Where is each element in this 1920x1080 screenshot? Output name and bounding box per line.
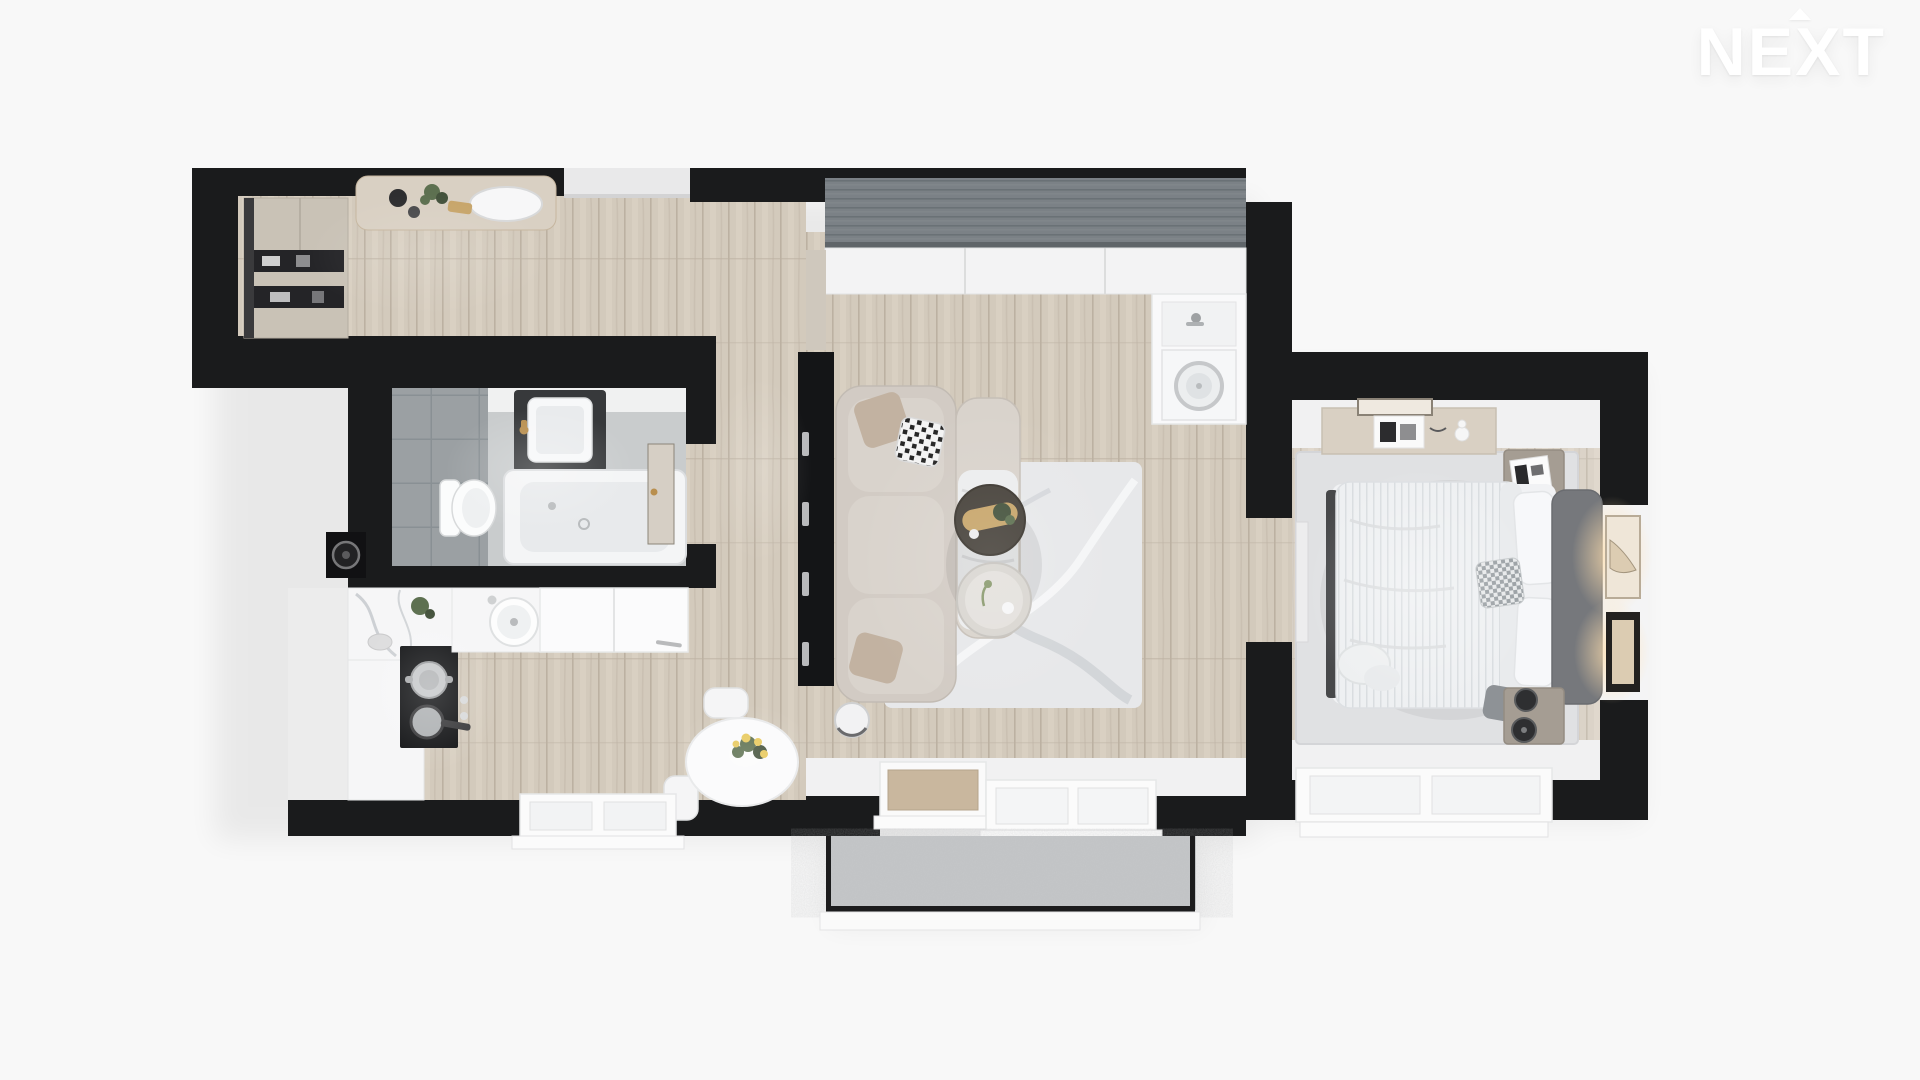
frying-pan [411,706,443,738]
side-table-dish [1002,602,1014,614]
slat-panel-shade [825,242,1246,248]
bedroom-right-wall-upper [1600,352,1648,505]
pot-handle-right [445,676,453,683]
book-cover-art-2 [1531,464,1544,476]
corner-washer-niche [326,532,366,578]
wall-art-2-inner [1612,620,1634,684]
bathroom-doorway-floor [686,444,716,544]
brass-faucet-stem [521,420,527,430]
corridor-floor [716,336,806,588]
wardrobe-shelf-items-3 [270,292,290,302]
storage-handle-3 [802,572,809,596]
counter-plant-leaf [425,609,435,619]
table-plant-leaf [1005,515,1015,525]
chair-top [704,688,748,718]
entrance-threshold [564,194,690,198]
photo-2 [1400,424,1416,440]
bath-kitchen-wall [348,566,716,588]
balcony-concrete-texture [828,836,1196,910]
cabinet-row [825,248,1246,294]
entrance-door-recess [564,168,690,198]
pillow-bw-pattern [894,416,946,468]
bedroom-doorway-floor [1246,518,1292,642]
wardrobe-shelf-items-2 [296,255,310,267]
round-pouf [835,703,869,737]
bedroom-window [1296,768,1552,837]
toilet [440,480,496,536]
niche-faucet-stem [1186,322,1204,326]
console-oval-tray [470,187,542,221]
kitchen-bottom-wall [288,800,520,836]
bedroom-door-leaf [1296,522,1308,642]
kitchen-window [512,794,684,849]
cabinet-end-panel [806,250,826,350]
photo-1 [1380,422,1396,442]
slat-closet-panel [825,178,1246,248]
bedroom-window-sill [1300,822,1548,837]
living-bedroom-divider-upper [1246,202,1292,518]
living-bottom-wall-right [1156,796,1246,836]
dark-storage-wall [798,352,834,686]
door-brass-handle [651,489,658,496]
kitchen-outer-wall [288,588,348,804]
pot-handle-left [405,676,413,683]
checked-cushion [1475,557,1525,609]
washing-machine [1162,350,1236,420]
living-bottom-wall-left [806,796,880,836]
table-lamp-1 [1515,689,1537,711]
tub-control-1 [548,502,556,510]
vanity-sink [514,390,606,472]
cooktop-knob-2 [460,712,468,720]
dresser [1322,399,1496,454]
side-table-light [957,563,1031,637]
bathroom-right-wall-lower [686,544,716,588]
balcony-door [874,762,992,829]
dining-table [686,718,798,806]
storage-handle-2 [802,502,809,526]
balcony-door-sill [874,816,992,829]
wardrobe-open-shelf-2 [254,286,344,308]
bedroom-top-wall [1292,352,1648,400]
apartment-plan-svg [0,0,1920,1080]
logo-roof-icon [1789,8,1811,20]
sink-drain [510,618,518,626]
sofa-cushion-2 [848,496,944,594]
floor-plan-render: NEXT [0,0,1920,1080]
console-decor-bowl [408,206,420,218]
storage-handle-4 [802,642,809,666]
sink-counter [452,588,540,652]
nightstand-bottom [1504,688,1564,744]
wardrobe-side-panel [244,198,254,338]
bathroom-tile-wall [392,388,488,566]
sink-faucet [488,596,497,605]
counter-bowl [368,634,392,650]
wardrobe-shelf-items-4 [312,291,324,303]
dresser-art-tray [1358,399,1432,415]
balcony-outer-ledge [820,912,1200,930]
table-cup [969,529,979,539]
niche-faucet [1191,313,1201,323]
cooktop-knob-1 [460,696,468,704]
bunny-figurine-head [1458,420,1466,428]
next-logo: NEXT [1697,18,1886,86]
balcony [820,836,1200,930]
balcony-door-panel [888,770,978,810]
coffee-table-dark [955,485,1025,555]
living-window [980,780,1162,843]
storage-handle-1 [802,432,809,456]
railing-right-post [1190,836,1195,914]
railing-left-post [826,836,831,914]
utility-niche [1152,294,1246,424]
console-decor-vase [389,189,407,207]
fridge-cabinet-block [540,588,688,652]
sprig-leaf [984,580,992,588]
wardrobe-shelf-items-1 [262,256,280,266]
bathroom-right-wall-upper [686,388,716,444]
next-logo-text: NEXT [1697,14,1886,90]
entry-bathroom-wall [192,336,716,388]
bunny-figurine-body [1455,427,1469,441]
railing-bottom-rail [826,906,1195,912]
kitchen-window-sill [512,836,684,849]
